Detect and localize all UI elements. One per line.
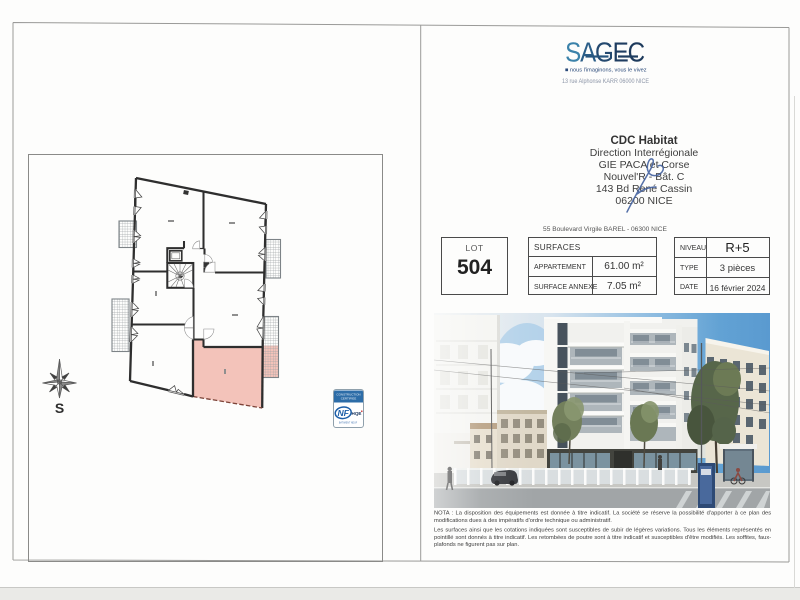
svg-text:S: S bbox=[55, 400, 64, 416]
svg-text:SAGEC: SAGEC bbox=[565, 36, 645, 68]
svg-text:CERTIFIEE: CERTIFIEE bbox=[341, 397, 357, 401]
svg-text:13 rue Alphonse KARR 06000 NIC: 13 rue Alphonse KARR 06000 NICE bbox=[562, 78, 649, 85]
svg-text:BATIMENT NEUF: BATIMENT NEUF bbox=[339, 422, 358, 425]
svg-text:HQE: HQE bbox=[352, 411, 362, 416]
svg-text:NF: NF bbox=[337, 408, 349, 418]
svg-text:■ nous l'imaginons, vous le vi: ■ nous l'imaginons, vous le vivez bbox=[565, 68, 647, 74]
